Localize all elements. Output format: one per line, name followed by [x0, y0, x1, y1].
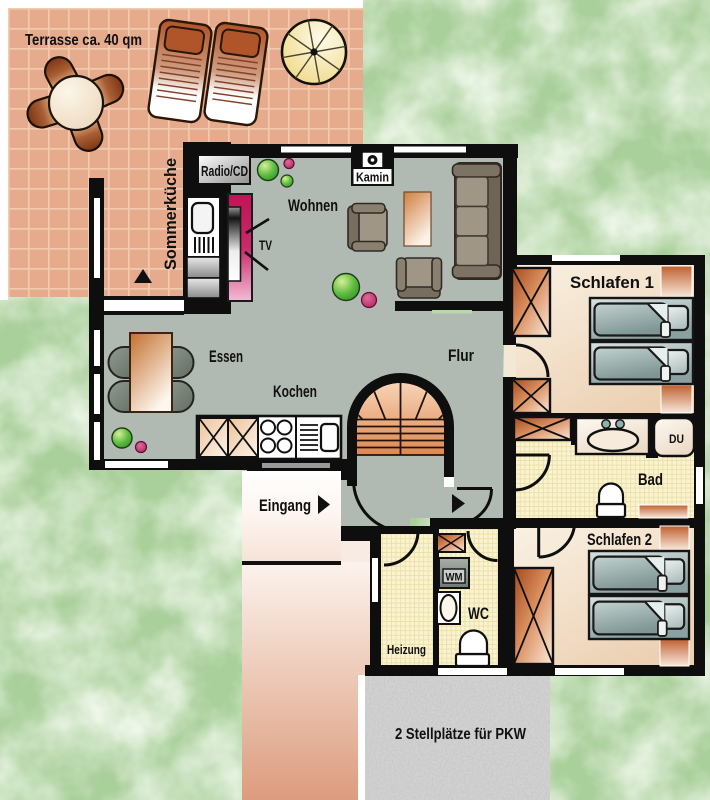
- svg-text:WC: WC: [468, 605, 489, 623]
- svg-text:Kochen: Kochen: [273, 382, 317, 401]
- svg-text:Eingang: Eingang: [259, 497, 311, 515]
- svg-text:DU: DU: [669, 432, 684, 446]
- svg-text:Terrasse ca. 40 qm: Terrasse ca. 40 qm: [25, 32, 142, 49]
- svg-text:Wohnen: Wohnen: [288, 196, 338, 215]
- svg-text:Heizung: Heizung: [387, 643, 426, 657]
- svg-text:Bad: Bad: [638, 471, 663, 489]
- svg-text:Sommerküche: Sommerküche: [161, 158, 180, 270]
- svg-text:Schlafen 2: Schlafen 2: [587, 531, 652, 549]
- svg-text:2 Stellplätze für PKW: 2 Stellplätze für PKW: [395, 726, 527, 743]
- svg-text:Schlafen 1: Schlafen 1: [570, 274, 654, 292]
- svg-text:Kamin: Kamin: [356, 171, 389, 185]
- svg-text:TV: TV: [259, 238, 272, 253]
- svg-text:Radio/CD: Radio/CD: [201, 164, 248, 180]
- svg-text:WM: WM: [446, 572, 463, 584]
- svg-text:Flur: Flur: [448, 346, 474, 365]
- svg-text:Essen: Essen: [209, 347, 243, 366]
